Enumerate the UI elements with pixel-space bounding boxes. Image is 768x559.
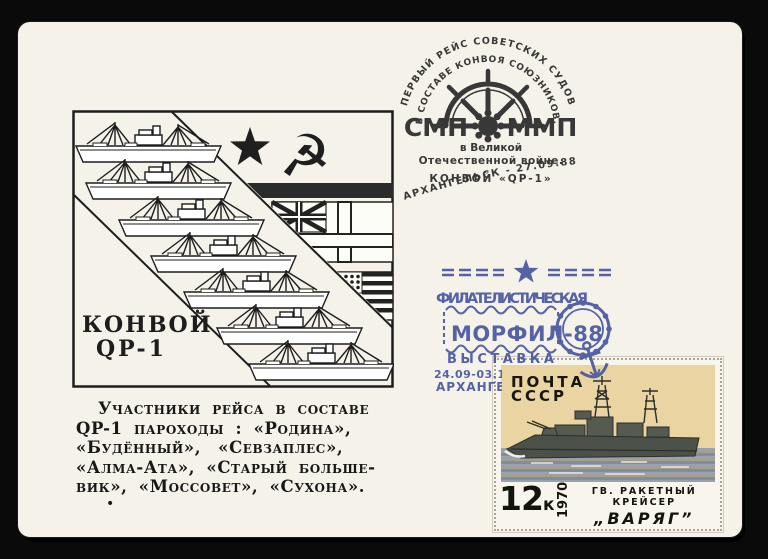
denomination-unit: к [543, 495, 554, 515]
convoy-ship-1 [76, 122, 221, 162]
note-line: «Алма-Ата», «Старый больше- [76, 458, 424, 478]
soviet-star-icon [230, 127, 270, 165]
note-line: «Будённый», «Севзаплес», [76, 438, 424, 458]
convoy-ship-7 [249, 340, 394, 380]
cachet-title-line2: QP-1 [96, 336, 167, 362]
stamp-caption-band: 12к 1970 ГВ. РАКЕТНЫЙ КРЕЙСЕР „ВАРЯГ” [499, 484, 717, 524]
convoy-cachet-illustration: ☭ [72, 110, 394, 388]
denomination-value: 12 [499, 479, 543, 518]
soviet-flag-band [247, 183, 393, 198]
note-line: вик», «Моссовет», «Сухона». [76, 477, 424, 497]
hammer-sickle-icon: ☭ [279, 122, 331, 190]
convoy-ship-4 [151, 232, 296, 272]
stamp-denomination: 12к [499, 484, 553, 520]
postmark-abbr-smp: СМП [404, 113, 468, 142]
cachet-title-line1: КОНВОЙ [82, 309, 213, 338]
exhibition-city: АРХАНГЕЛЬСК [436, 380, 547, 394]
exhibition-title: МОРФИЛ-88 [451, 322, 603, 346]
convoy-ship-3 [119, 196, 264, 236]
note-bullet: • [106, 496, 114, 512]
voyage-anniversary-postmark: ПЕРВЫЙ РЕЙС СОВЕТСКИХ СУДОВ В СОСТАВЕ КО… [392, 26, 612, 214]
exhibition-line1: ФИЛАТЕЛИСТИЧЕСКАЯ [436, 291, 588, 307]
convoy-ship-5 [184, 268, 329, 308]
postmark-abbr-mmp: ММП [507, 113, 578, 142]
stamp-caption-line2: „ВАРЯГ” [571, 509, 717, 528]
envelope-cover: ☭ [18, 22, 742, 537]
blue-star-icon [514, 259, 539, 283]
postmark-line1: в Великой [460, 142, 522, 154]
convoy-ship-2 [86, 159, 231, 199]
note-line: QP-1 пароходы : «Родина», [76, 419, 424, 439]
exhibition-cachet: ФИЛАТЕЛИСТИЧЕСКАЯ МОРФИЛ-88 ВЫСТАВКА 2 [420, 250, 670, 402]
convoy-participants-note: Участники рейса в составе QP-1 пароходы … [76, 399, 424, 497]
exhibition-line2: ВЫСТАВКА [447, 352, 557, 367]
convoy-ship-6 [217, 304, 362, 344]
stamp-year: 1970 [556, 484, 571, 518]
british-ensign-flag [272, 202, 393, 262]
stamp-caption-line1: ГВ. РАКЕТНЫЙ КРЕЙСЕР [571, 486, 717, 508]
note-line: Участники рейса в составе [76, 399, 424, 419]
